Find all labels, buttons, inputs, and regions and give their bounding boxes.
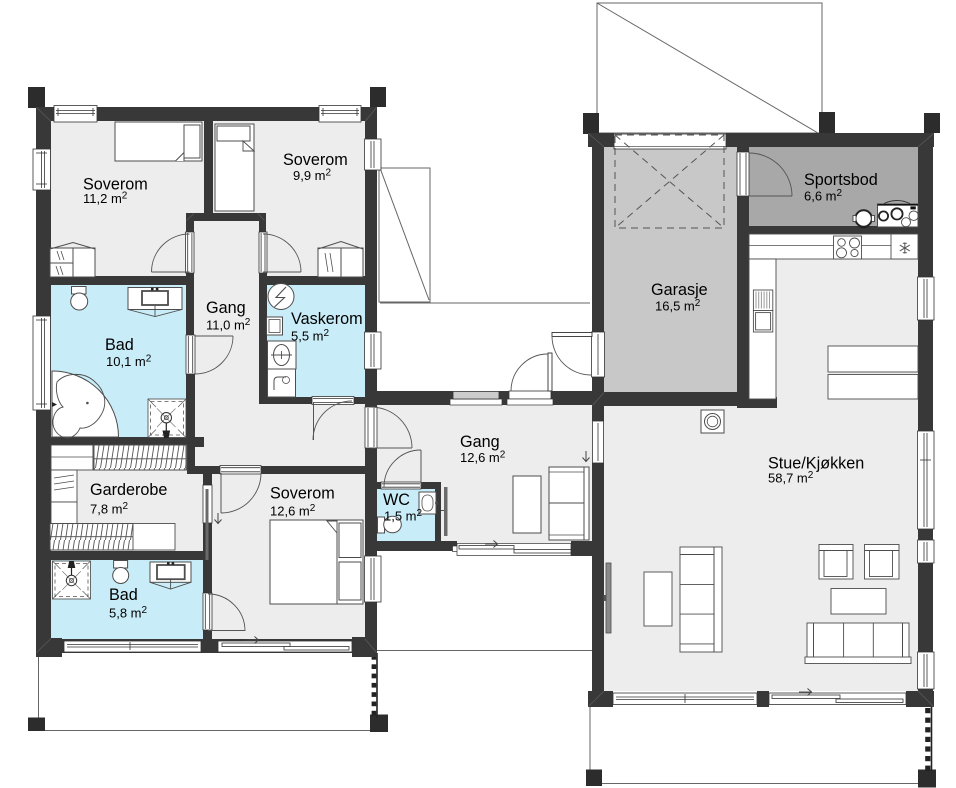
svg-text:Garasje: Garasje (651, 281, 708, 299)
svg-text:11,0 m2: 11,0 m2 (206, 317, 251, 333)
svg-text:58,7 m2: 58,7 m2 (768, 470, 814, 486)
svg-text:16,5 m2: 16,5 m2 (655, 298, 701, 314)
svg-text:Bad: Bad (105, 336, 134, 354)
svg-text:Soverom: Soverom (270, 485, 335, 503)
svg-text:Soverom: Soverom (283, 151, 348, 169)
svg-text:11,2 m2: 11,2 m2 (83, 191, 128, 207)
svg-text:Vaskerom: Vaskerom (291, 310, 363, 328)
svg-text:Bad: Bad (109, 586, 138, 604)
svg-text:12,6 m2: 12,6 m2 (270, 503, 316, 519)
svg-text:Gang: Gang (460, 433, 500, 451)
svg-text:Gang: Gang (206, 299, 246, 317)
svg-text:Garderobe: Garderobe (90, 481, 167, 499)
svg-text:WC: WC (383, 491, 410, 509)
svg-text:Sportsbod: Sportsbod (804, 171, 878, 189)
svg-text:10,1 m2: 10,1 m2 (106, 354, 152, 370)
svg-text:12,6 m2: 12,6 m2 (460, 450, 506, 466)
